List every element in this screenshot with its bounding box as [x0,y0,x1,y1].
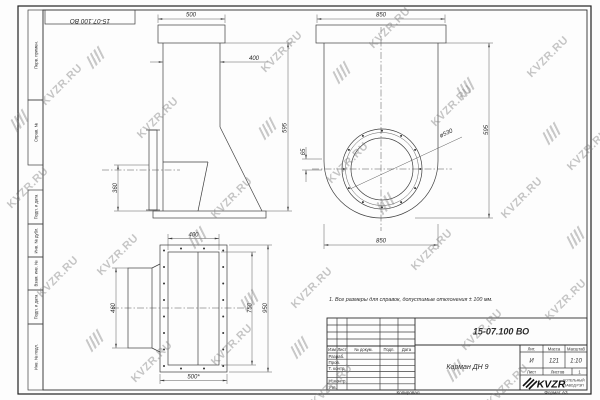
col-date: Дата [402,347,412,352]
doc-number: 15-07.100 ВО [473,327,529,337]
dim-side-500: 500 [186,13,197,19]
col-doc: № докум. [354,347,372,352]
dim-front-65: 65 [301,148,307,155]
drawing-sheet: Перв. примен. Справ. № Подп. и дата Инв.… [0,0,600,400]
footer-kopiroval: Копировал [396,390,419,395]
row-checked: Пров. [329,360,341,365]
dim-front-850-bottom: 850 [376,239,387,245]
dim-plan-500: 500* [187,374,200,380]
sheets-value: 1 [578,369,581,374]
scale-value: 1:10 [570,359,582,365]
sheet-label: Лист [527,369,536,374]
mass-header: Масса [548,347,561,352]
row-ncontrol: Н. контр. [329,379,347,384]
dim-plan-950: 950 [263,302,269,313]
top-stamp: 15-07.100 ВО [45,10,135,24]
margin-label-perv: Перв. примен. [34,41,39,69]
kvzr-logo-text: KVZR [537,379,566,391]
sheets-label: Листов [551,369,565,374]
margin-boxes: Перв. примен. Справ. № Подп. и дата Инв.… [28,10,43,390]
view-front: 850 65 ø530 595 850 [301,13,493,250]
kvzr-logo: KVZR КОТЕЛЬНЫЙ ЗАВОД РЭП [523,378,585,391]
row-tcontrol: Т. контр. [329,366,346,371]
margin-label-inv-dubl: Инв. № дубл. [34,228,39,254]
dim-front-dia530: ø530 [439,128,455,139]
margin-label-sprav: Справ. № [34,122,39,142]
kvzr-sub-line1: КОТЕЛЬНЫЙ [563,379,585,383]
dim-plan-400: 400 [188,233,199,239]
dim-plan-460: 460 [111,302,117,313]
col-list: Лист [337,347,346,352]
lit-header: Лит. [528,347,536,352]
row-developed: Разраб. [329,354,345,359]
part-name: Карман ДН 9 [446,364,488,371]
margin-label-vzam: Взам. инв. № [34,260,39,286]
kvzr-logo-icon [523,378,537,389]
margin-label-podp1: Подп. и дата [34,194,39,219]
dim-side-400: 400 [249,56,260,62]
col-sign: Подп. [383,347,394,352]
dim-front-850-top: 850 [376,13,387,19]
scale-header: Масштаб [567,347,586,352]
frame: Перв. примен. Справ. № Подп. и дата Инв.… [18,6,591,395]
mass-value: 121 [549,359,559,365]
margin-label-podp2: Подп. и дата [34,294,39,319]
view-plan: 400 500* 750 950 460 [111,233,272,385]
drawing-svg: Перв. примен. Справ. № Подп. и дата Инв.… [0,0,600,400]
dim-plan-750: 750 [248,302,254,313]
row-approved: Утв. [329,385,337,390]
lit-value: И [529,359,534,365]
dim-side-360: 360 [113,182,119,193]
title-block: Изм Лист № докум. Подп. Дата Разраб. Про… [327,318,587,391]
footer-format: Формат А3 [544,390,568,395]
dim-front-595: 595 [484,124,490,135]
margin-label-inv-podl: Инв. № подл. [34,344,39,370]
top-stamp-number: 15-07.100 ВО [70,17,110,24]
view-side: 500 400 595 360 [102,13,292,219]
col-izm: Изм [328,347,336,352]
dim-side-595: 595 [283,122,289,133]
kvzr-sub-line2: ЗАВОД РЭП [564,384,584,388]
drawing-note: 1. Все размеры для справок, допустимые о… [329,297,493,303]
plan-bolt-holes [163,248,224,370]
